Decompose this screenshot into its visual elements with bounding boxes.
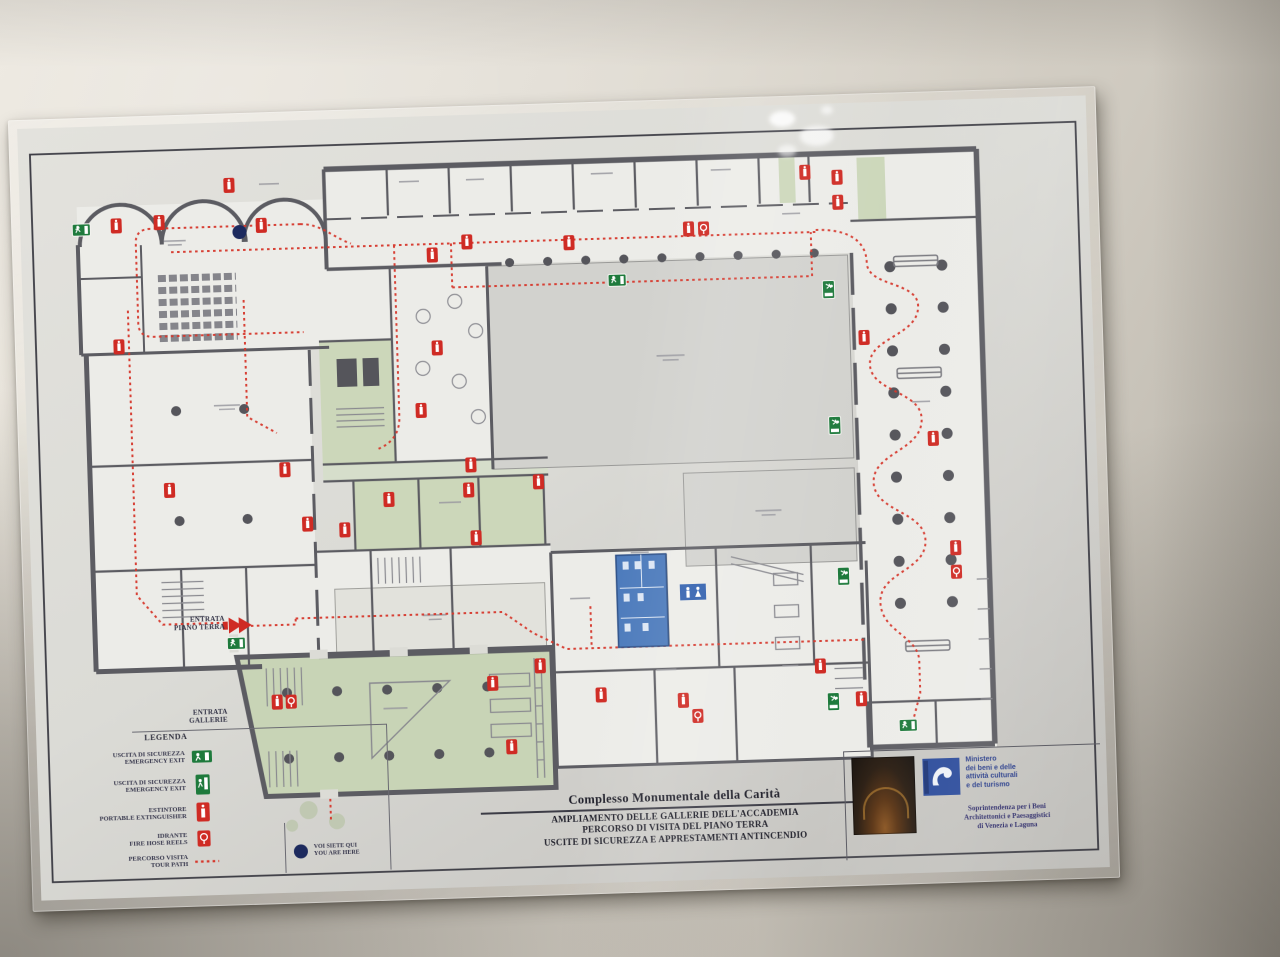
entrance-ground-floor-label: ENTRATA PIANO TERRA: [139, 615, 225, 634]
courtyard-large: [487, 255, 854, 469]
legend-title: LEGENDA: [144, 732, 187, 742]
tour-path-dotted-line: [194, 858, 220, 865]
you-are-here-label: VOI SIETE QUI YOU ARE HERE: [314, 843, 360, 858]
wc-sign-icon: [680, 584, 706, 601]
fire-hose-reel-icon: [196, 829, 212, 847]
emergency-exit-icon: [191, 749, 213, 764]
legend-item-hose-reel: IDRANTE FIRE HOSE REELS: [95, 832, 187, 849]
courtyard-small-center: [335, 583, 547, 653]
ministry-text: Ministero dei beni e delle attività cult…: [965, 755, 1018, 791]
legend-item-emergency-exit-1: USCITA DI SICUREZZA EMERGENCY EXIT: [93, 750, 185, 767]
legend-item-extinguisher: ESTINTORE PORTABLE EXTINGUISHER: [95, 806, 187, 823]
emergency-exit-vertical-icon: [194, 773, 211, 795]
credits-block: Ministero dei beni e delle attività cult…: [843, 743, 1103, 860]
legend-item-tour-path: PERCORSO VISITA TOUR PATH: [96, 854, 188, 871]
legend-item-emergency-exit-2: USCITA DI SICUREZZA EMERGENCY EXIT: [94, 778, 186, 795]
ministry-logo: [922, 758, 960, 796]
soprintendenza-text: Soprintendenza per i Beni Architettonici…: [918, 800, 1097, 833]
wall-photo-background: ENTRATA PIANO TERRA ENTRATA GALLERIE LEG…: [0, 0, 1280, 957]
entrance-galleries-label: ENTRATA GALLERIE: [141, 708, 227, 727]
entrance-trees: [285, 800, 345, 832]
accademia-logo: [851, 756, 916, 835]
courtyard-small-right: [683, 468, 857, 566]
fire-extinguisher-icon: [195, 801, 211, 822]
poster-paper: ENTRATA PIANO TERRA ENTRATA GALLERIE LEG…: [17, 95, 1110, 900]
plastic-sleeve: ENTRATA PIANO TERRA ENTRATA GALLERIE LEG…: [8, 86, 1120, 912]
